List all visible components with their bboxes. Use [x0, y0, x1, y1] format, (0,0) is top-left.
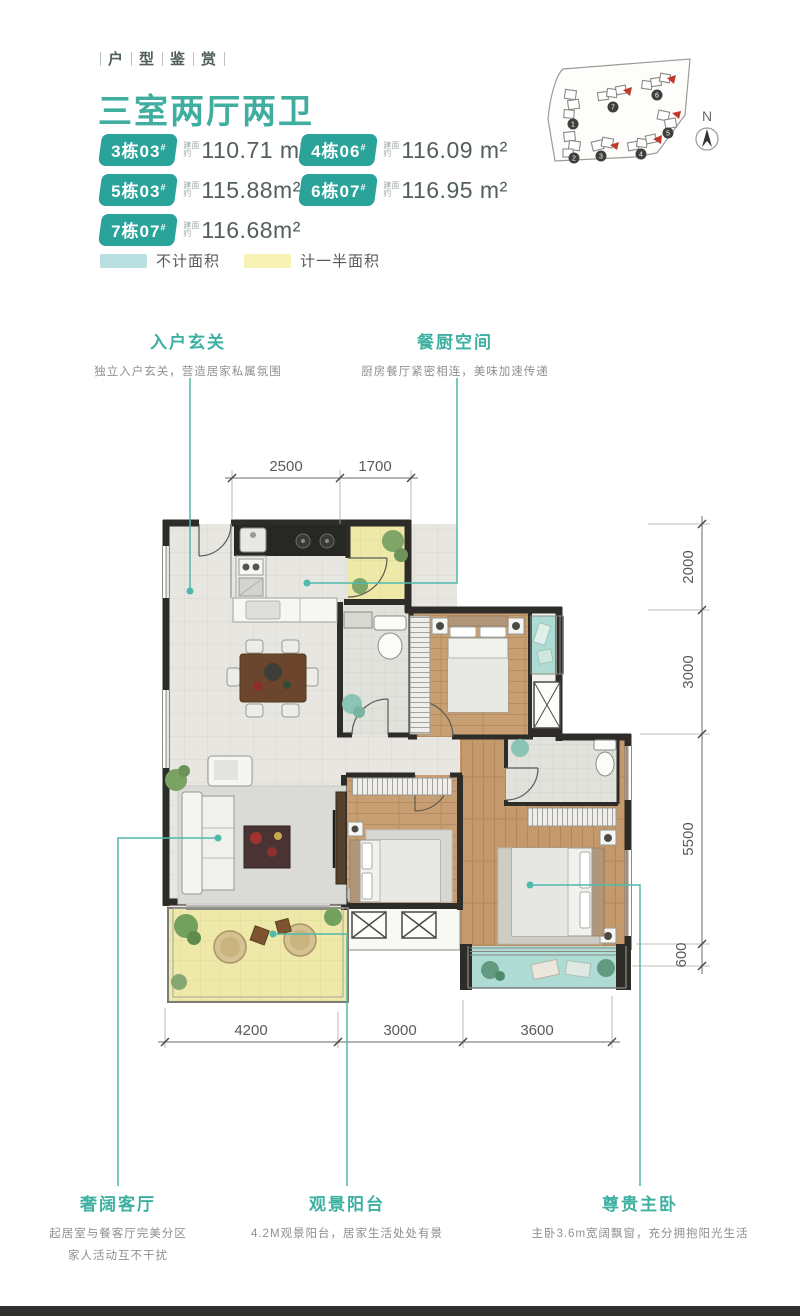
callout-title: 观景阳台 [251, 1190, 443, 1215]
callout-desc: 4.2M观景阳台，居家生活处处有景 [251, 1224, 443, 1246]
dim-bottom-2: 3000 [383, 1022, 416, 1039]
plant-icon [511, 739, 529, 757]
plant-icon [353, 706, 365, 718]
pillow [480, 627, 506, 637]
plant-icon [187, 931, 201, 945]
plant-icon [597, 959, 615, 977]
sofa-back [182, 792, 202, 894]
toilet-bowl [378, 633, 402, 659]
table-decor [250, 832, 262, 844]
wardrobe [528, 808, 616, 826]
callout-desc-line: 起居室与餐客厅完美分区 [49, 1224, 187, 1246]
knob-icon [253, 564, 260, 571]
extension-lines [632, 524, 710, 966]
kitchen-sink [240, 528, 266, 552]
round-chair-cushion [290, 930, 310, 950]
bench-cushion [246, 601, 280, 619]
toilet-bowl [596, 752, 614, 776]
leader-dot [187, 588, 194, 595]
callout-foyer: 入户玄关 独立入户玄关，营造居家私属氛围 [94, 328, 282, 384]
side-table [275, 918, 291, 934]
toilet-tank [374, 616, 406, 630]
blanket [448, 658, 508, 712]
callout-desc: 独立入户玄关，营造居家私属氛围 [94, 362, 282, 384]
blanket [380, 840, 440, 902]
pillow [580, 852, 590, 888]
callout-desc: 主卧3.6m宽阔飘窗，充分拥抱阳光生活 [531, 1224, 748, 1246]
dim-top-2: 1700 [358, 458, 391, 475]
pillow [580, 892, 590, 928]
table-decor [274, 832, 282, 840]
page-bottom-edge [0, 1306, 800, 1316]
callout-desc: 厨房餐厅紧密相连，美味加速传递 [361, 362, 549, 384]
callout-desc-line: 家人活动互不干扰 [49, 1246, 187, 1268]
leader-dot [527, 882, 534, 889]
round-chair-cushion [220, 937, 240, 957]
lamp-icon [512, 622, 520, 630]
table-decor [283, 681, 291, 689]
dining-chair [246, 704, 263, 717]
callout-desc: 起居室与餐客厅完美分区 家人活动互不干扰 [49, 1224, 187, 1268]
plant-icon [171, 974, 187, 990]
bed-headboard [350, 840, 360, 902]
floor-plan: 2500 1700 2000 3000 5500 600 4200 3000 3… [0, 0, 800, 1316]
coffee-table [244, 826, 290, 868]
dim-bottom-1: 4200 [234, 1022, 267, 1039]
lamp-icon [604, 834, 612, 842]
burner-dot [301, 539, 305, 543]
plant-icon [324, 908, 342, 926]
table-decor [253, 681, 263, 691]
blanket [512, 848, 568, 936]
callout-kitchen: 餐厨空间 厨房餐厅紧密相连，美味加速传递 [361, 328, 549, 384]
callout-master: 尊贵主卧 主卧3.6m宽阔飘窗，充分拥抱阳光生活 [531, 1190, 748, 1246]
leader-dot [270, 931, 277, 938]
leader-dot [215, 835, 222, 842]
wardrobe [352, 778, 452, 795]
dim-bottom-3: 3600 [520, 1022, 553, 1039]
corridor-floor [337, 737, 462, 775]
leader-dot [304, 580, 311, 587]
tv-console [336, 792, 346, 884]
table-decor [264, 663, 282, 681]
plant-icon [352, 578, 368, 594]
floorplan-page: 户 型 鉴 赏 三室两厅两卫 3栋03# 建面约110.71 m² 4栋06# … [0, 0, 800, 1316]
plant-icon [495, 971, 505, 981]
plant-icon [178, 765, 190, 777]
faucet-icon [250, 532, 256, 538]
callout-title: 入户玄关 [94, 328, 282, 353]
washbasin [344, 612, 372, 628]
dining-chair [305, 668, 318, 686]
dim-right-2: 3000 [680, 655, 697, 688]
dim-right-4: 600 [673, 942, 690, 967]
callout-title: 餐厨空间 [361, 328, 549, 353]
table-decor [267, 847, 277, 857]
callout-balcony: 观景阳台 4.2M观景阳台，居家生活处处有景 [251, 1190, 443, 1246]
dining-chair [246, 640, 263, 653]
burner-dot [325, 539, 329, 543]
armchair-cushion [214, 760, 238, 780]
bed-headboard [592, 848, 604, 936]
lamp-icon [436, 622, 444, 630]
bay-cushion [565, 960, 591, 977]
knob-icon [243, 564, 250, 571]
sofa-seat [202, 796, 234, 890]
pillow [362, 873, 372, 899]
dining-chair [282, 640, 299, 653]
plant-icon [394, 548, 408, 562]
bed-headboard [448, 616, 508, 626]
dim-right-1: 2000 [680, 550, 697, 583]
dining-chair [227, 668, 240, 686]
dining-chair [282, 704, 299, 717]
callout-living: 奢阔客厅 起居室与餐客厅完美分区 家人活动互不干扰 [49, 1190, 187, 1268]
bay-cushion [537, 649, 553, 665]
callout-title: 尊贵主卧 [531, 1190, 748, 1215]
pillow [450, 627, 476, 637]
dim-top-1: 2500 [269, 458, 302, 475]
dim-right-3: 5500 [680, 822, 697, 855]
wardrobe [410, 616, 430, 734]
pillow [362, 843, 372, 869]
lamp-icon [604, 932, 612, 940]
lamp-icon [352, 826, 359, 833]
callout-title: 奢阔客厅 [49, 1190, 187, 1215]
toilet-tank [594, 740, 616, 750]
